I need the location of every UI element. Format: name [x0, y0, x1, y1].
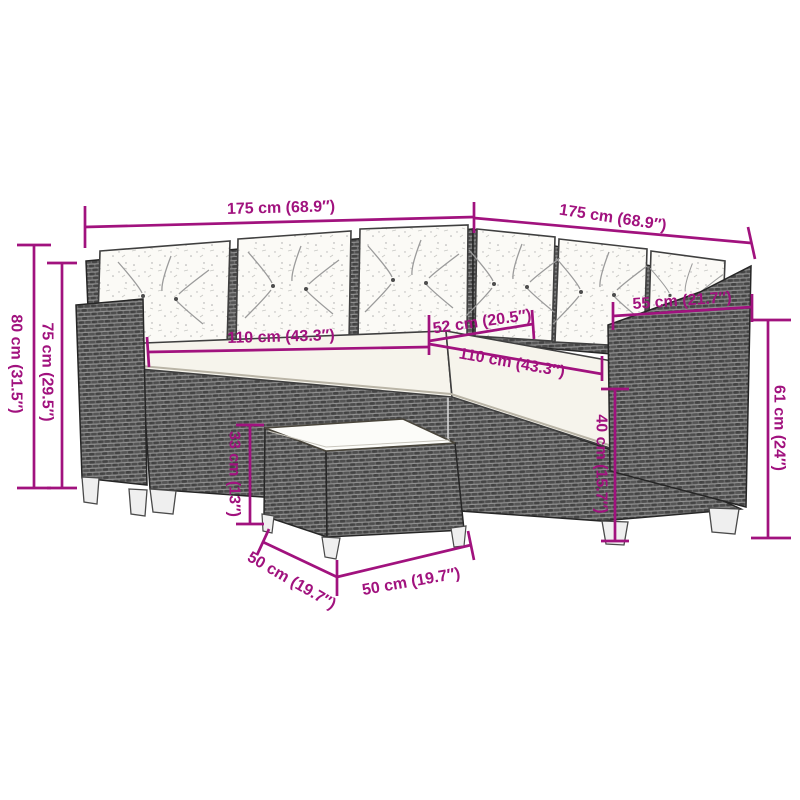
dim-label-backrest-height: 75 cm (29.5″) [38, 322, 55, 421]
dim-label-table-height: 33 cm (13″) [225, 431, 242, 517]
table-foot [451, 526, 466, 547]
sofa-foot [82, 477, 99, 504]
sofa-foot [150, 489, 176, 514]
dim-label-back-width-left: 175 cm (68.9″) [227, 198, 336, 218]
dim-label-armrest-height: 61 cm (24″) [770, 385, 787, 471]
dim-label-table-width: 50 cm (19.7″) [361, 565, 462, 599]
coffee-table [262, 419, 466, 559]
sofa-foot [129, 489, 147, 516]
product-dimension-diagram: 175 cm (68.9″) 175 cm (68.9″) 80 cm (31.… [0, 0, 800, 800]
dim-label-seat-width-left: 110 cm (43.3″) [227, 327, 335, 347]
left-armrest [76, 299, 147, 485]
dim-label-seat-height: 40 cm (15.7″) [592, 414, 609, 513]
dim-label-total-height: 80 cm (31.5″) [7, 314, 24, 413]
diagram-stage: 175 cm (68.9″) 175 cm (68.9″) 80 cm (31.… [0, 0, 800, 800]
sofa-foot [709, 508, 739, 534]
table-side-right [326, 443, 464, 537]
dim-label-table-depth: 50 cm (19.7″) [244, 549, 338, 613]
dim-line [85, 217, 474, 227]
table-foot [322, 537, 340, 559]
